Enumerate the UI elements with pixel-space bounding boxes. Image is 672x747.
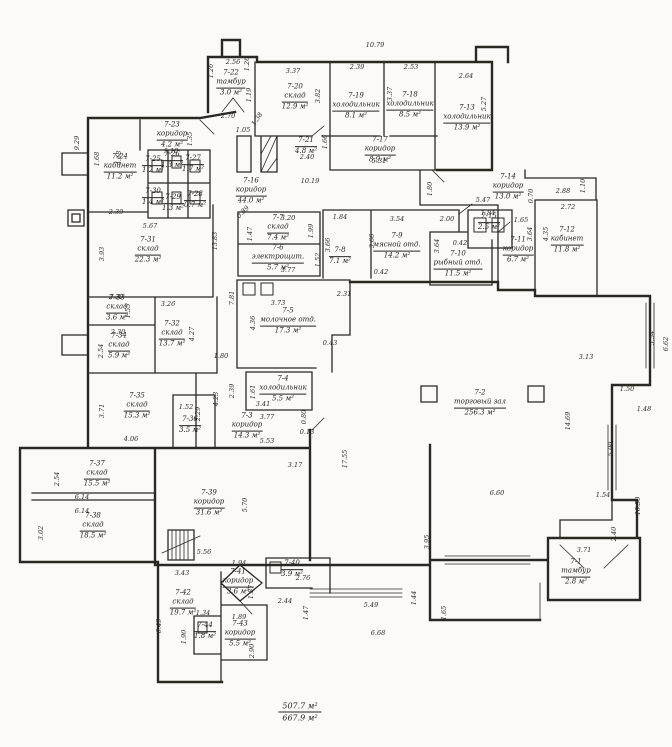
dimension-label: 1.84 xyxy=(333,213,347,221)
total-area: 507.7 м² 667.9 м² xyxy=(278,702,321,723)
dimension-label: 4.36 xyxy=(249,316,257,330)
room-label-7-22: 7-22тамбур3.0 м² xyxy=(216,69,245,98)
dimension-label: 3.13 xyxy=(579,353,593,361)
dimension-label: 3.26 xyxy=(161,300,175,308)
dimension-label: 3.82 xyxy=(314,89,322,103)
dimension-label: 3.93 xyxy=(98,247,106,261)
dimension-label: 5.90 xyxy=(607,442,615,456)
dimension-label: 3.37 xyxy=(286,67,300,75)
dimension-label: 1.26 xyxy=(207,64,215,78)
dimension-label: 2.40 xyxy=(610,527,618,541)
dimension-label: 6.60 xyxy=(490,489,504,497)
room-label-7-40: 7-403.9 м² xyxy=(281,559,303,579)
dimension-label: 3.02 xyxy=(37,526,45,540)
room-label-7-32: 7-32склад13.7 м² xyxy=(159,320,185,349)
room-label-7-8: 7-87.1 м² xyxy=(329,246,351,266)
dimension-label: 3.17 xyxy=(288,461,302,469)
room-label-7-1: 7-1тамбур2.8 м² xyxy=(561,558,590,587)
dimension-label: 1.50 xyxy=(620,385,634,393)
dimension-label: 17.55 xyxy=(341,450,349,469)
dimension-label: 1.94 xyxy=(232,559,246,567)
room-label-7-17: 7-17коридор8.9 м² xyxy=(365,136,396,165)
dimension-label: 2.70 xyxy=(221,112,235,120)
room-label-7-36: 7-363.5 м² xyxy=(179,415,201,435)
room-label-7-12: 7-12кабинет11.8 м² xyxy=(551,226,584,255)
floor-plan: 7-1тамбур2.8 м²7-2торговый зал256.3 м²7-… xyxy=(0,0,672,747)
room-label-7-35: 7-35склад15.3 м² xyxy=(124,392,150,421)
room-label-7-15: 7-152.5 м² xyxy=(478,212,500,232)
room-label-7-23: 7-23коридор4.2 м² xyxy=(157,121,188,150)
room-label-7-43: 7-43коридор5.5 м² xyxy=(225,620,256,649)
dimension-label: 1.99 xyxy=(307,224,315,238)
dimension-label: 3.43 xyxy=(175,569,189,577)
total-area-gross: 667.9 м² xyxy=(278,713,321,723)
room-label-7-19: 7-19холодильник8.1 м² xyxy=(332,92,379,121)
room-label-7-44: 7-441.8 м² xyxy=(194,621,216,641)
dimension-label: 9.29 xyxy=(73,136,81,150)
dimension-label: 2.39 xyxy=(350,63,364,71)
room-label-7-3: 7-3коридор14.3 м² xyxy=(232,412,263,441)
dimension-label: 2.88 xyxy=(556,187,570,195)
dimension-label: 1.80 xyxy=(214,352,228,360)
dimension-label: 1.65 xyxy=(514,216,528,224)
dimension-label: 1.48 xyxy=(637,405,651,413)
dimension-label: 5.67 xyxy=(143,222,157,230)
dimension-label: 2.56 xyxy=(226,58,240,66)
dimension-label: 2.31 xyxy=(337,290,351,298)
dimension-label: 1.47 xyxy=(302,606,310,620)
room-label-7-30: 7-301.4 м² xyxy=(142,187,164,207)
dimension-label: 1.66 xyxy=(321,135,329,149)
room-label-7-27: 7-271.7 м² xyxy=(182,154,204,174)
room-label-7-37: 7-37склад15.5 м² xyxy=(84,460,110,489)
dimension-label: 5.47 xyxy=(476,196,490,204)
dimension-label: 3.95 xyxy=(423,535,431,549)
room-label-7-14: 7-14коридор13.0 м² xyxy=(493,173,524,202)
dimension-label: 1.52 xyxy=(314,253,322,267)
dimension-label: 2.54 xyxy=(53,472,61,486)
dimension-label: 2.53 xyxy=(404,63,418,71)
room-label-7-33: 7-33склад3.6 м² xyxy=(106,294,128,323)
dimension-label: 6.14 xyxy=(75,493,89,501)
room-label-7-42: 7-42склад19.7 м² xyxy=(170,589,196,618)
dimension-label: 4.27 xyxy=(188,327,196,341)
room-label-7-38: 7-38склад18.5 м² xyxy=(80,512,106,541)
dimension-label: 5.54 xyxy=(648,331,656,345)
dimension-label: 1.61 xyxy=(249,385,257,399)
dimension-label: 1.90 xyxy=(180,630,188,644)
dimension-label: 5.70 xyxy=(241,498,249,512)
dimension-label: 3.71 xyxy=(577,546,591,554)
dimension-label: 2.64 xyxy=(459,72,473,80)
room-label-7-34: 7-34склад5.9 м² xyxy=(108,332,130,361)
dimension-label: 3.54 xyxy=(390,215,404,223)
dimension-label: 10.79 xyxy=(366,41,385,49)
dimension-label: 4.23 xyxy=(212,392,220,406)
dimension-label: 6.62 xyxy=(662,337,670,351)
room-label-7-5: 7-5молочное отд.17.3 м² xyxy=(260,307,316,336)
dimension-label: 3.71 xyxy=(98,404,106,418)
dimension-label: 1.52 xyxy=(179,403,193,411)
room-label-7-4: 7-4холодильник5.5 м² xyxy=(259,375,306,404)
dimension-label: 7.81 xyxy=(228,291,236,305)
dimension-label: 4.35 xyxy=(542,227,550,241)
room-label-7-18: 7-18холодильник8.5 м² xyxy=(386,91,433,120)
room-label-7-28: 7-280.7 м² xyxy=(184,190,206,210)
dimension-label: 2.39 xyxy=(109,208,123,216)
dimension-label: 1.65 xyxy=(440,606,448,620)
dimension-label: 0.42 xyxy=(374,268,388,276)
dimension-label: 1.44 xyxy=(410,591,418,605)
dimension-label: 0.80 xyxy=(300,410,308,424)
dimension-label: 13.83 xyxy=(211,232,219,251)
dimension-label: 1.34 xyxy=(196,609,210,617)
dimension-label: 5.56 xyxy=(197,548,211,556)
room-label-7-13: 7-13холодильник13.9 м² xyxy=(443,104,490,133)
room-label-7-24: 7-24кабинет11.2 м² xyxy=(104,153,137,182)
dimension-label: 1.10 xyxy=(579,179,587,193)
dimension-label: 1.05 xyxy=(236,126,250,134)
room-label-7-41: 7-41коридор3.6 м² xyxy=(223,568,254,597)
dimension-label: 1.54 xyxy=(596,491,610,499)
dimension-label: 2.44 xyxy=(278,597,292,605)
dimension-label: 6.49 xyxy=(155,619,163,633)
total-area-net: 507.7 м² xyxy=(278,702,321,713)
dimension-label: 2.00 xyxy=(440,215,454,223)
room-label-7-26: 7-261.3 м² xyxy=(161,150,183,170)
dimension-label: 10.19 xyxy=(301,177,320,185)
dimension-label: 1.19 xyxy=(245,88,253,102)
room-label-7-9: 7-9мясной отд.14.2 м² xyxy=(373,232,420,261)
dimension-label: 0.13 xyxy=(300,428,314,436)
dimension-label: 6.68 xyxy=(371,629,385,637)
dimension-label: 2.39 xyxy=(228,384,236,398)
room-label-7-39: 7-39коридор31.6 м² xyxy=(194,489,225,518)
room-label-7-21: 7-214.8 м² xyxy=(295,136,317,156)
dimension-label: 5.49 xyxy=(364,601,378,609)
dimension-label: 10.50 xyxy=(634,497,642,516)
room-label-7-20: 7-20склад12.9 м² xyxy=(282,83,308,112)
room-label-7-29: 7-291.3 м² xyxy=(162,193,184,213)
room-label-7-7: 7-7склад7.4 м² xyxy=(267,214,289,243)
dimension-label: 2.54 xyxy=(97,344,105,358)
room-label-7-31: 7-31склад22.3 м² xyxy=(135,236,161,265)
dimension-label: 0.70 xyxy=(527,189,535,203)
room-label-7-2: 7-2торговый зал256.3 м² xyxy=(454,389,506,418)
room-label-7-6: 7-6электрощит.5.7 м² xyxy=(252,244,304,273)
dimension-label: 14.69 xyxy=(564,412,572,431)
dimension-label: 1.47 xyxy=(246,227,254,241)
dimension-label: 1.80 xyxy=(426,182,434,196)
room-label-7-11: 7-11коридор6.7 м² xyxy=(503,236,534,265)
room-label-7-10: 7-10рыбный отд.11.5 м² xyxy=(433,250,482,279)
dimension-label: 2.72 xyxy=(561,203,575,211)
dimension-label: 0.43 xyxy=(323,339,337,347)
dimension-label: 0.42 xyxy=(453,239,467,247)
dimension-label: 1.68 xyxy=(93,152,101,166)
room-label-7-16: 7-16коридор44.0 м² xyxy=(236,177,267,206)
dimension-label: 4.06 xyxy=(124,435,138,443)
